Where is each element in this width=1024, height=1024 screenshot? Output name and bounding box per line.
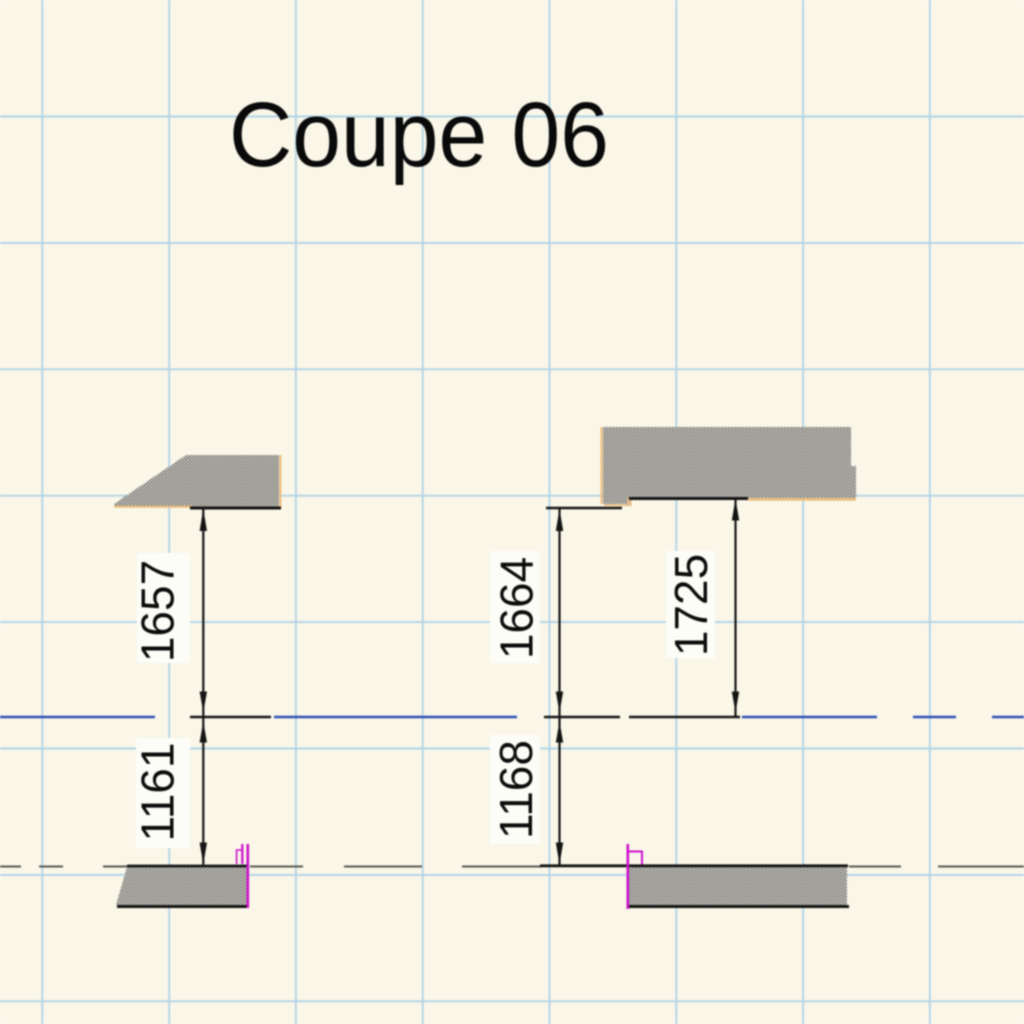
svg-text:1168: 1168 — [490, 740, 542, 839]
svg-text:1161: 1161 — [132, 743, 184, 842]
svg-text:Coupe 06: Coupe 06 — [229, 84, 609, 186]
svg-text:1664: 1664 — [490, 557, 542, 659]
svg-text:1725: 1725 — [665, 554, 717, 656]
svg-text:1657: 1657 — [132, 560, 184, 662]
